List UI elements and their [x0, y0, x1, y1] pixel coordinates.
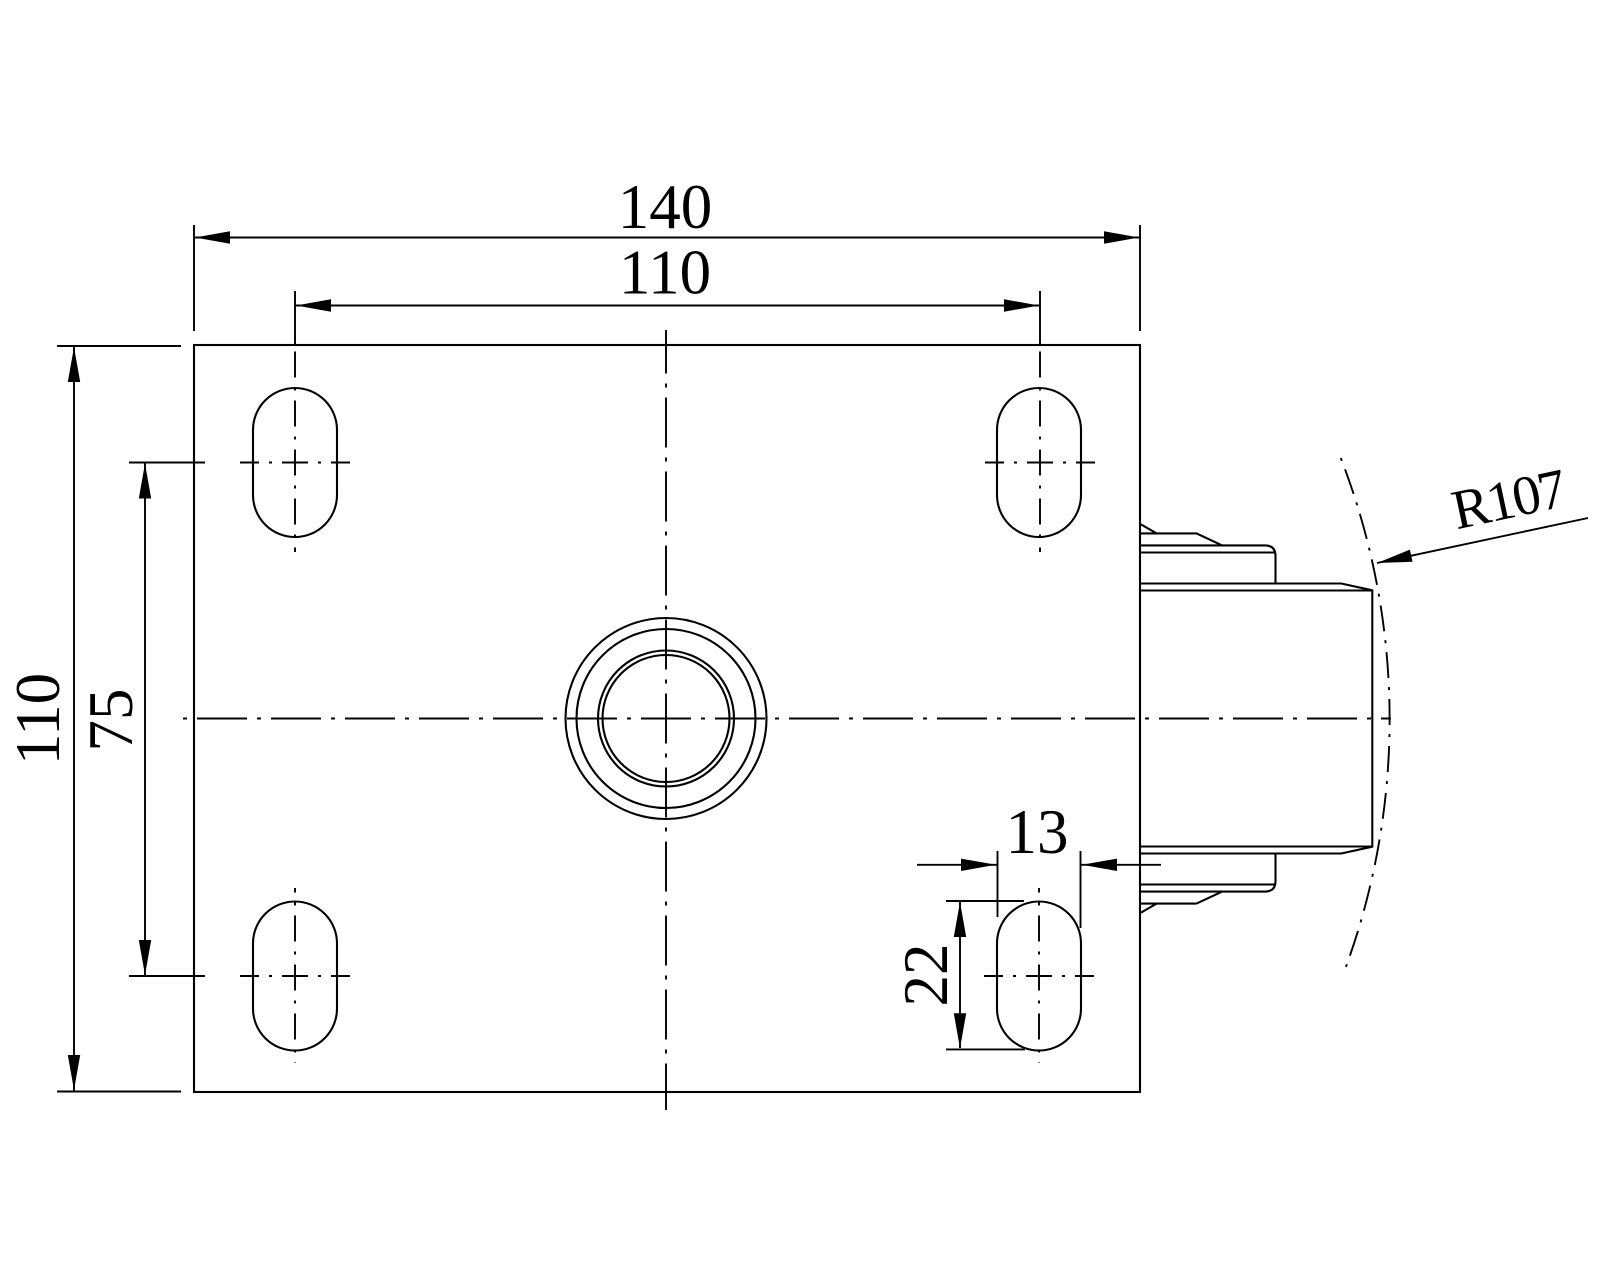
svg-text:110: 110 — [619, 238, 711, 308]
svg-text:140: 140 — [618, 172, 713, 242]
svg-text:22: 22 — [891, 944, 961, 1007]
svg-text:110: 110 — [3, 673, 73, 765]
svg-text:13: 13 — [1006, 797, 1069, 867]
svg-text:75: 75 — [76, 689, 146, 752]
